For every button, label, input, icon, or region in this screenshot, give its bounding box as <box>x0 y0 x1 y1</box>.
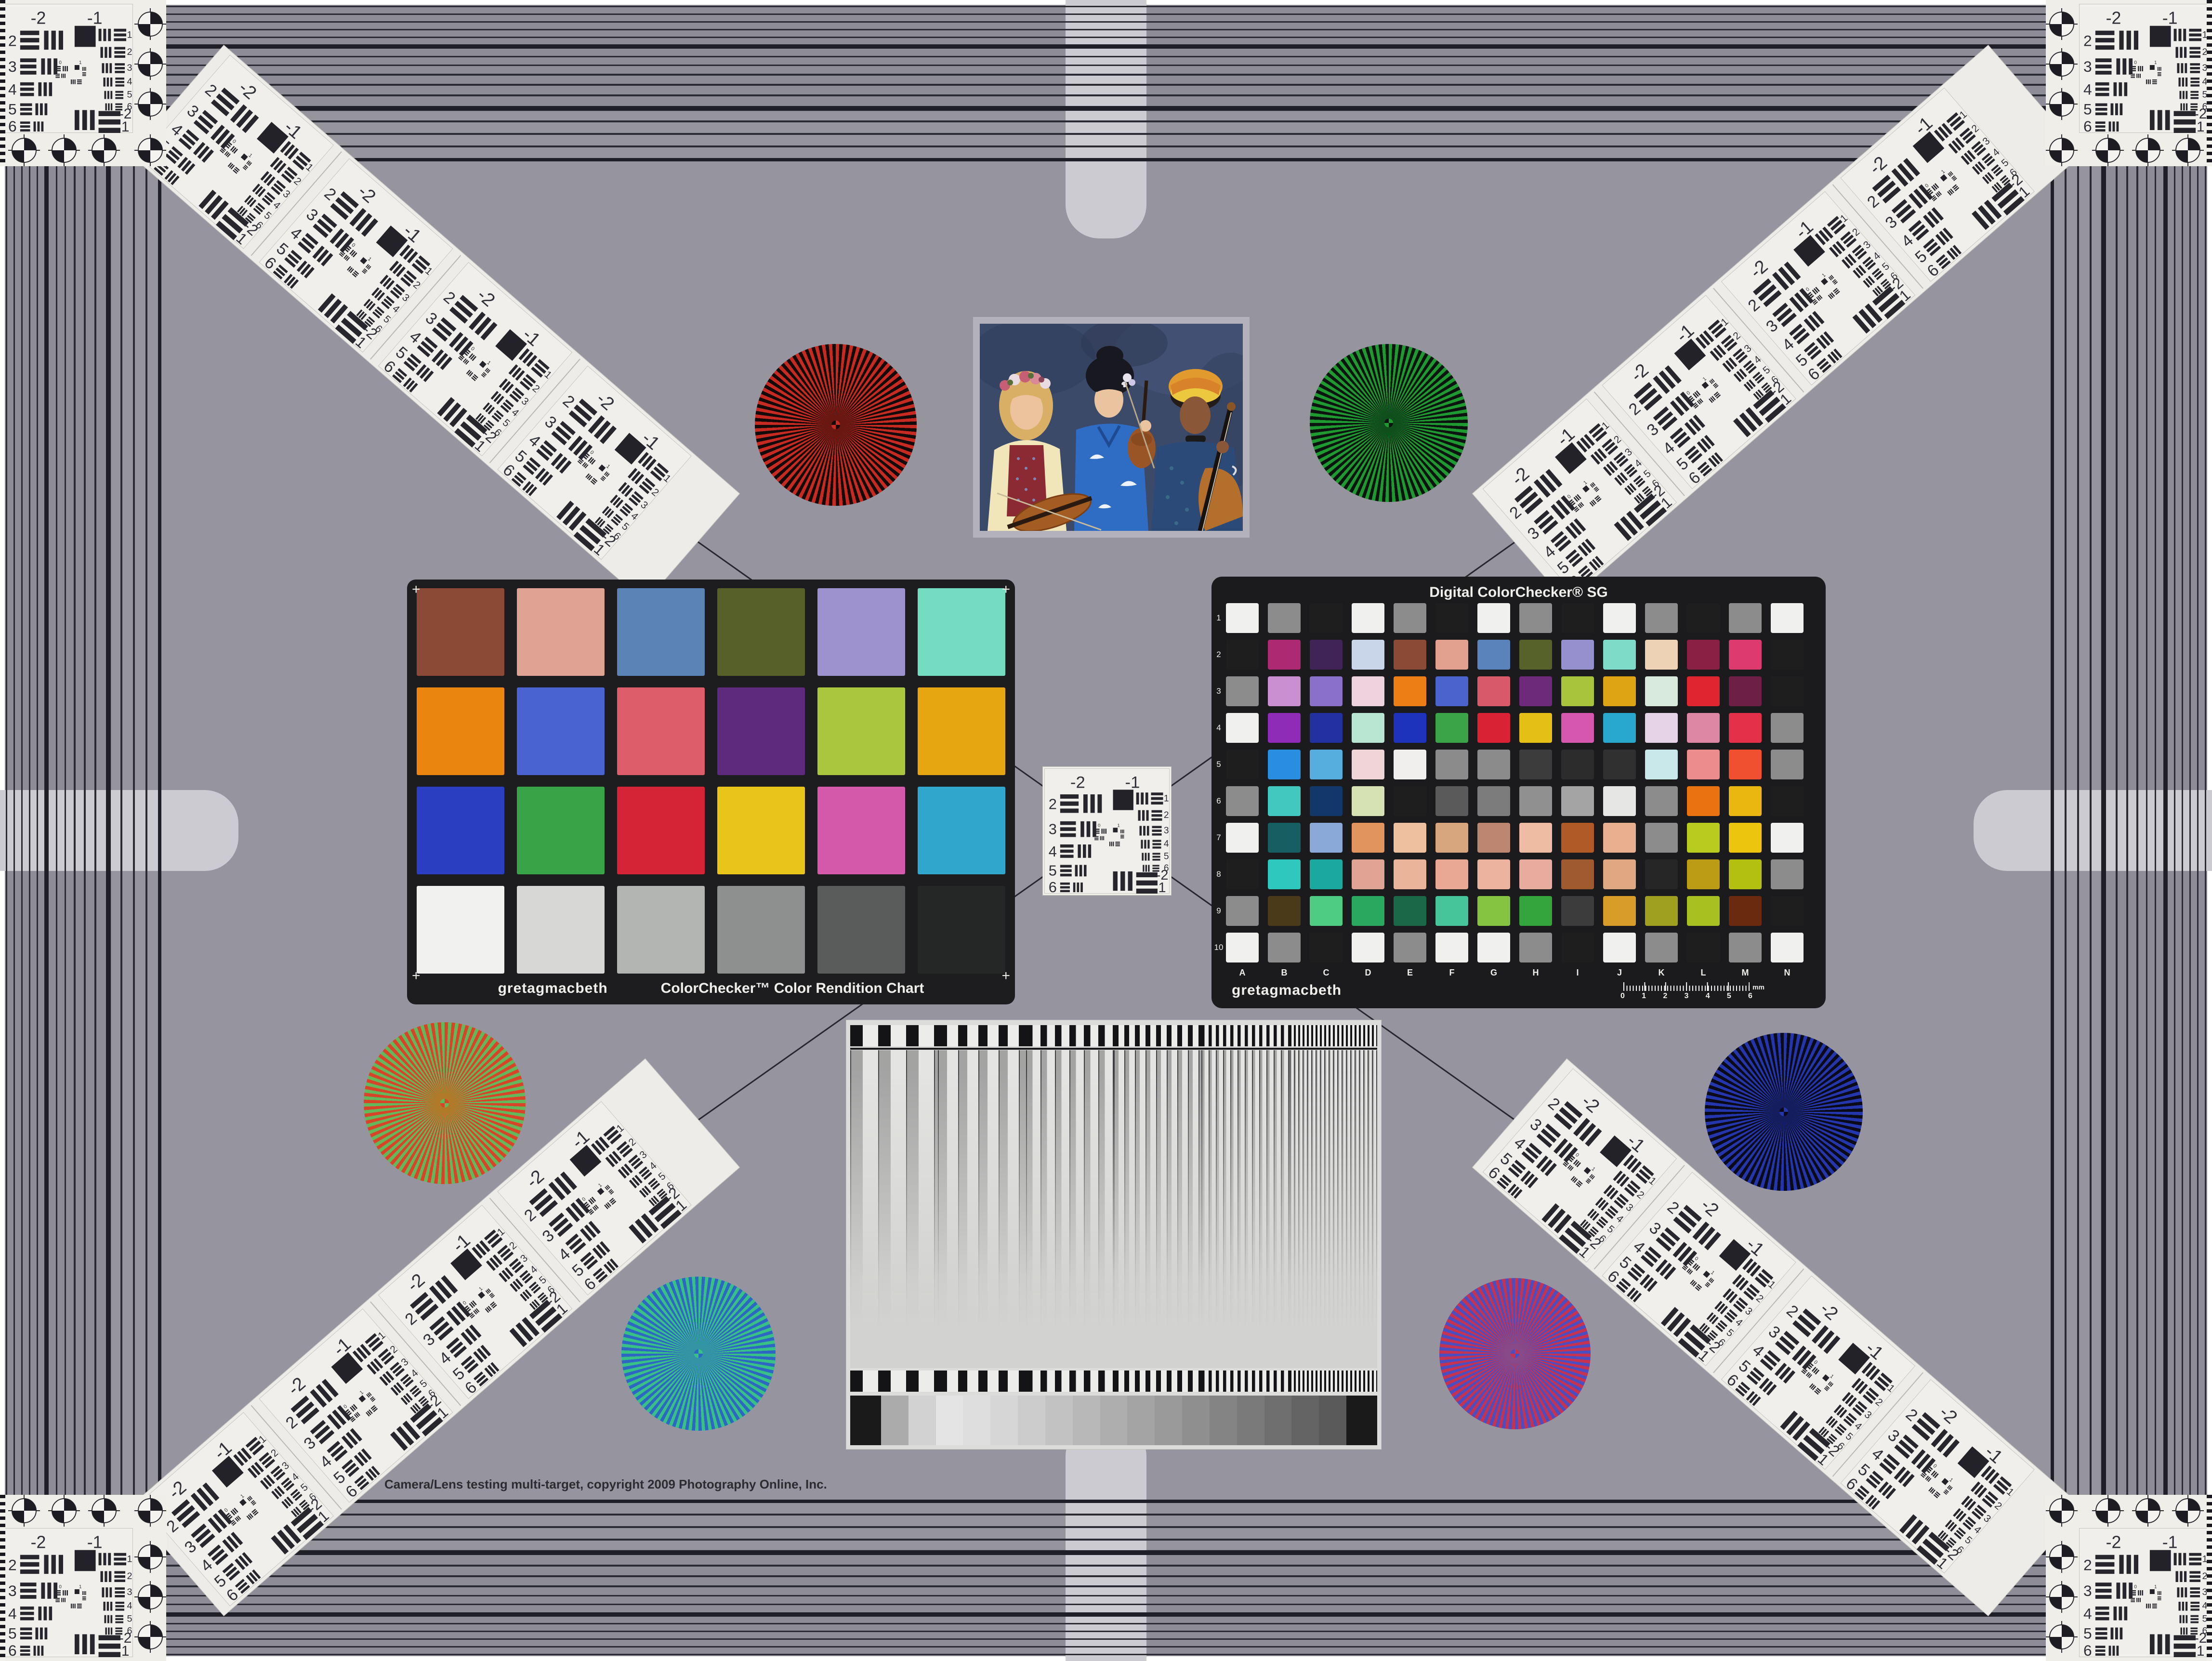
color-patch <box>817 687 905 775</box>
color-patch <box>1771 603 1804 633</box>
label: 9 <box>1213 896 1224 926</box>
label: M <box>1729 968 1762 978</box>
color-patch <box>1268 896 1301 926</box>
color-patch <box>1268 603 1301 633</box>
corner-target-top-left <box>0 0 166 166</box>
color-patch <box>1310 896 1343 926</box>
corner-target-bottom-right <box>2046 1495 2212 1661</box>
color-patch <box>1603 713 1636 743</box>
color-patch <box>1771 933 1804 962</box>
color-patch <box>1645 859 1678 889</box>
color-patch <box>1394 933 1426 962</box>
label: 8 <box>1213 859 1224 889</box>
color-patch <box>1352 896 1384 926</box>
sg-row-labels: 12345678910 <box>1213 603 1224 962</box>
mm-ruler: 0123456 mm <box>1623 982 1768 1001</box>
color-patch <box>1729 823 1762 853</box>
color-patch <box>1771 640 1804 670</box>
portrait-test-photo <box>973 317 1250 538</box>
color-patch <box>1226 676 1259 706</box>
color-patch <box>1045 1396 1073 1445</box>
color-patch <box>1687 859 1720 889</box>
color-patch <box>1210 1396 1237 1445</box>
color-patch <box>1268 750 1301 779</box>
label: H <box>1519 968 1552 978</box>
color-patch <box>1435 676 1468 706</box>
color-patch <box>1561 640 1594 670</box>
color-patch <box>1729 786 1762 816</box>
color-patch <box>1291 1396 1319 1445</box>
colorchecker-sg-card: Digital ColorChecker® SG 12345678910 ABC… <box>1211 577 1826 1008</box>
chart-name-label: ColorChecker™ Color Rendition Chart <box>661 980 924 997</box>
color-patch <box>1687 676 1720 706</box>
color-patch <box>517 687 605 775</box>
color-patch <box>1352 603 1384 633</box>
color-patch <box>1352 713 1384 743</box>
color-patch <box>1352 640 1384 670</box>
color-patch <box>517 787 605 874</box>
three-musicians-illustration <box>980 324 1243 531</box>
label: I <box>1561 968 1594 978</box>
edge-ruler-icon <box>2207 0 2212 166</box>
label: 1 <box>1213 603 1224 633</box>
color-patch <box>1561 859 1594 889</box>
color-patch <box>817 787 905 874</box>
color-patch <box>517 886 605 974</box>
color-patch <box>1435 603 1468 633</box>
color-patch <box>1226 859 1259 889</box>
color-patch <box>918 787 1005 874</box>
color-patch <box>1352 859 1384 889</box>
color-patch <box>1310 933 1343 962</box>
color-patch <box>1519 676 1552 706</box>
label: 6 <box>1213 786 1224 816</box>
test-chart-scene: + + + + gretagmacbeth ColorChecker™ Colo… <box>0 0 2212 1661</box>
color-patch <box>918 886 1005 974</box>
sg-column-labels: ABCDEFGHIJKLMN <box>1226 968 1804 978</box>
color-patch <box>1477 859 1510 889</box>
color-patch <box>417 886 504 974</box>
color-patch <box>1310 713 1343 743</box>
color-patch <box>1687 603 1720 633</box>
color-patch <box>1603 786 1636 816</box>
color-patch <box>1477 713 1510 743</box>
color-patch <box>1394 640 1426 670</box>
color-patch <box>617 787 705 874</box>
color-patch <box>1771 750 1804 779</box>
siemens-star-blue <box>1705 1033 1863 1191</box>
color-patch <box>1519 603 1552 633</box>
color-patch <box>1394 713 1426 743</box>
label: J <box>1603 968 1636 978</box>
color-patch <box>1519 933 1552 962</box>
color-patch <box>1319 1396 1346 1445</box>
color-patch <box>1435 786 1468 816</box>
color-patch <box>1477 896 1510 926</box>
color-patch <box>1310 859 1343 889</box>
color-patch <box>1561 786 1594 816</box>
edge-ruler-icon <box>2207 1495 2212 1661</box>
label: 0 <box>1620 992 1625 1001</box>
color-patch <box>1645 786 1678 816</box>
color-patch <box>1394 896 1426 926</box>
label: B <box>1268 968 1301 978</box>
color-patch <box>1771 859 1804 889</box>
color-patch <box>1645 676 1678 706</box>
color-patch <box>1237 1396 1264 1445</box>
color-patch <box>1561 933 1594 962</box>
edge-ruler-icon <box>0 1495 5 1661</box>
color-patch <box>1226 933 1259 962</box>
color-patch <box>1435 750 1468 779</box>
color-patch <box>1771 786 1804 816</box>
color-patch <box>1477 823 1510 853</box>
color-patch <box>1435 859 1468 889</box>
color-patch <box>1771 713 1804 743</box>
color-patch <box>1268 859 1301 889</box>
label: 3 <box>1685 992 1689 1001</box>
label: K <box>1645 968 1678 978</box>
color-patch <box>1268 676 1301 706</box>
color-patch <box>1729 896 1762 926</box>
label: 2 <box>1213 640 1224 670</box>
color-patch <box>1519 713 1552 743</box>
color-patch <box>1268 823 1301 853</box>
color-patch <box>881 1396 908 1445</box>
color-patch <box>1561 750 1594 779</box>
color-patch <box>1519 823 1552 853</box>
color-patch <box>1477 786 1510 816</box>
color-patch <box>817 588 905 676</box>
label: 6 <box>1748 992 1752 1001</box>
color-patch <box>1155 1396 1182 1445</box>
color-patch <box>1310 640 1343 670</box>
color-patch <box>417 787 504 874</box>
siemens-star-teal <box>621 1277 776 1431</box>
label: 5 <box>1727 992 1731 1001</box>
color-patch <box>1394 750 1426 779</box>
color-patch <box>1226 823 1259 853</box>
color-patch <box>1435 933 1468 962</box>
color-patch <box>1226 786 1259 816</box>
color-patch <box>1310 823 1343 853</box>
color-patch <box>1477 676 1510 706</box>
sg-grid <box>1226 603 1804 962</box>
color-patch <box>1435 713 1468 743</box>
color-patch <box>936 1396 963 1445</box>
color-patch <box>1519 750 1552 779</box>
divider-line <box>850 1048 1377 1050</box>
color-patch <box>1519 640 1552 670</box>
color-patch <box>817 886 905 974</box>
color-patch <box>617 886 705 974</box>
color-patch <box>1264 1396 1292 1445</box>
color-patch <box>1310 750 1343 779</box>
color-patch <box>1603 750 1636 779</box>
color-patch <box>1268 713 1301 743</box>
ruler-numbers: 0123456 <box>1620 992 1752 1001</box>
square-wave-sweep-bottom <box>850 1371 1377 1392</box>
color-patch <box>717 787 805 874</box>
color-patch <box>1226 603 1259 633</box>
color-patch <box>1519 859 1552 889</box>
grayscale-step-wedge <box>850 1396 1377 1445</box>
color-patch <box>1687 640 1720 670</box>
color-patch <box>1477 750 1510 779</box>
label: 7 <box>1213 823 1224 853</box>
color-patch <box>1519 786 1552 816</box>
square-wave-sweep-top <box>850 1025 1377 1046</box>
color-patch <box>1073 1396 1100 1445</box>
color-patch <box>1645 603 1678 633</box>
color-patch <box>517 588 605 676</box>
color-patch <box>1477 603 1510 633</box>
color-patch <box>990 1396 1018 1445</box>
color-patch <box>1603 933 1636 962</box>
color-patch <box>1645 713 1678 743</box>
color-patch <box>1352 933 1384 962</box>
color-patch <box>918 588 1005 676</box>
label: 4 <box>1213 713 1224 743</box>
color-patch <box>1729 603 1762 633</box>
registration-cross: + <box>412 582 421 597</box>
corner-target-bottom-left <box>0 1495 166 1661</box>
color-patch <box>1352 750 1384 779</box>
label: 3 <box>1213 676 1224 706</box>
color-patch <box>1603 859 1636 889</box>
color-patch <box>1561 823 1594 853</box>
color-patch <box>1310 676 1343 706</box>
color-patch <box>717 687 805 775</box>
color-patch <box>1268 640 1301 670</box>
color-patch <box>1394 823 1426 853</box>
color-patch <box>1127 1396 1155 1445</box>
label: F <box>1435 968 1468 978</box>
color-patch <box>1687 933 1720 962</box>
color-patch <box>1687 786 1720 816</box>
sg-title: Digital ColorChecker® SG <box>1211 584 1826 601</box>
color-patch <box>1729 713 1762 743</box>
color-patch <box>1477 933 1510 962</box>
color-patch <box>1394 786 1426 816</box>
color-patch <box>1561 603 1594 633</box>
color-patch <box>1645 750 1678 779</box>
label: E <box>1394 968 1426 978</box>
brand-label: gretagmacbeth <box>1232 982 1342 999</box>
ruler-ticks-icon <box>1623 982 1750 991</box>
color-patch <box>1603 603 1636 633</box>
label: C <box>1310 968 1343 978</box>
sine-sweep-field <box>850 1050 1377 1368</box>
frequency-sweep-chart <box>846 1020 1381 1449</box>
color-patch <box>1645 640 1678 670</box>
ruler-unit-label: mm <box>1752 983 1764 991</box>
color-patch <box>1435 896 1468 926</box>
color-patch <box>1268 786 1301 816</box>
color-patch <box>908 1396 936 1445</box>
color-patch <box>1687 713 1720 743</box>
color-patch <box>1018 1396 1045 1445</box>
color-patch <box>1645 896 1678 926</box>
siemens-star-orange <box>364 1022 526 1184</box>
siemens-star-magenta <box>1439 1278 1591 1429</box>
color-patch <box>1729 933 1762 962</box>
colorchecker-24-card: + + + + gretagmacbeth ColorChecker™ Colo… <box>407 580 1015 1004</box>
color-patch <box>1561 896 1594 926</box>
color-patch <box>1687 750 1720 779</box>
siemens-star-green <box>1310 344 1468 502</box>
corner-target-top-right <box>2046 0 2212 166</box>
color-patch <box>1603 640 1636 670</box>
color-patch <box>1729 676 1762 706</box>
color-patch <box>1561 676 1594 706</box>
label: 10 <box>1213 933 1224 962</box>
color-patch <box>1310 786 1343 816</box>
color-patch <box>1310 603 1343 633</box>
color-patch <box>1477 640 1510 670</box>
label: 1 <box>1642 992 1646 1001</box>
color-patch <box>1100 1396 1128 1445</box>
color-patch <box>617 588 705 676</box>
color-patch <box>1771 823 1804 853</box>
label: A <box>1226 968 1259 978</box>
color-patch <box>1687 823 1720 853</box>
color-patch <box>1226 640 1259 670</box>
color-patch <box>1771 896 1804 926</box>
color-patch <box>1394 603 1426 633</box>
color-patch <box>417 687 504 775</box>
color-patch <box>1687 896 1720 926</box>
color-patch <box>1645 823 1678 853</box>
siemens-star-red <box>755 344 917 506</box>
color-patch <box>1394 676 1426 706</box>
label: 2 <box>1663 992 1667 1001</box>
color-patch <box>1394 859 1426 889</box>
color-patch <box>1435 640 1468 670</box>
color-patch <box>1182 1396 1210 1445</box>
color-patch <box>1346 1396 1377 1445</box>
copyright-text: Camera/Lens testing multi-target, copyri… <box>384 1477 827 1492</box>
color-patch <box>1226 896 1259 926</box>
color-patch <box>1226 750 1259 779</box>
brand-label: gretagmacbeth <box>498 980 608 997</box>
color-patch <box>1729 640 1762 670</box>
color-patch <box>1352 676 1384 706</box>
color-patch <box>963 1396 990 1445</box>
colorchecker-24-grid <box>417 588 1005 974</box>
color-patch <box>850 1396 881 1445</box>
color-patch <box>1771 676 1804 706</box>
color-patch <box>617 687 705 775</box>
color-patch <box>1519 896 1552 926</box>
color-patch <box>1729 859 1762 889</box>
color-patch <box>918 687 1005 775</box>
color-patch <box>1603 823 1636 853</box>
color-patch <box>1603 676 1636 706</box>
color-patch <box>1352 823 1384 853</box>
label: D <box>1352 968 1384 978</box>
label: 4 <box>1706 992 1710 1001</box>
label: L <box>1687 968 1720 978</box>
label: 5 <box>1213 750 1224 779</box>
color-patch <box>1561 713 1594 743</box>
registration-cross: + <box>1001 582 1010 597</box>
color-patch <box>1268 933 1301 962</box>
label: N <box>1771 968 1804 978</box>
color-patch <box>1226 713 1259 743</box>
color-patch <box>717 886 805 974</box>
color-patch <box>1603 896 1636 926</box>
edge-ruler-icon <box>0 0 5 166</box>
label: G <box>1477 968 1510 978</box>
color-patch <box>1729 750 1762 779</box>
color-patch <box>1645 933 1678 962</box>
center-resolution-target <box>1043 767 1171 895</box>
color-patch <box>417 588 504 676</box>
color-patch <box>1352 786 1384 816</box>
color-patch <box>717 588 805 676</box>
color-patch <box>1435 823 1468 853</box>
